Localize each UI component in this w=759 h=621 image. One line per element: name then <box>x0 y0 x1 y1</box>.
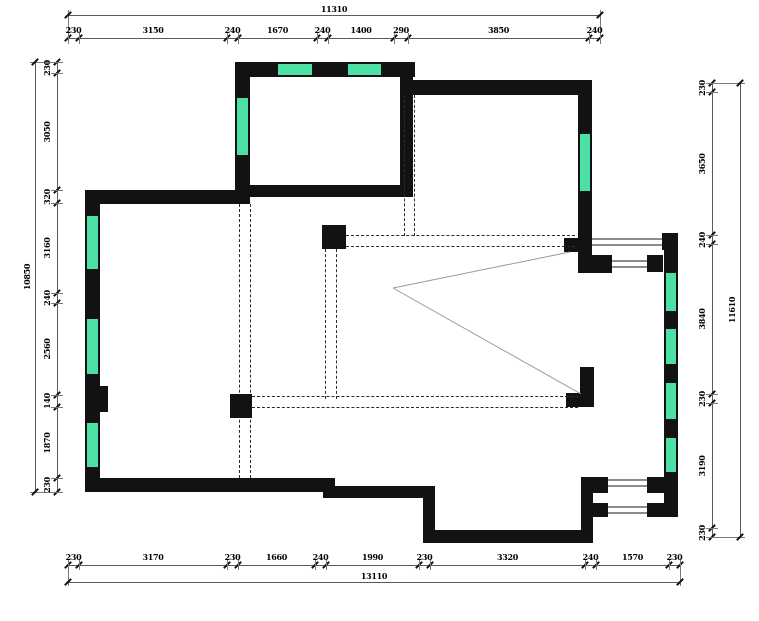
dim-bottom-segment-line <box>68 565 680 566</box>
dim-bottom-segment-7: 3320 <box>497 553 518 561</box>
dim-bottom-segment-3: 1660 <box>266 553 287 561</box>
dim-top-overall-line <box>68 15 600 16</box>
dim-ext-right <box>706 244 718 245</box>
dim-ext-left <box>51 395 63 396</box>
dim-top-segment-1: 3150 <box>142 26 163 34</box>
dim-top-overall-label: 11310 <box>321 5 347 13</box>
dim-left-segment-3: 3160 <box>43 237 51 258</box>
dim-left-segment-7: 1870 <box>43 432 51 453</box>
opening-lines <box>0 0 759 621</box>
dim-top-segment-4: 240 <box>315 26 331 34</box>
dim-ext-left <box>51 407 63 408</box>
dim-right-overall-line <box>740 83 741 537</box>
dim-bottom-segment-2: 230 <box>225 553 241 561</box>
dim-right-segment-6: 230 <box>698 525 706 541</box>
dim-bottom-segment-6: 230 <box>417 553 433 561</box>
dim-bottom-segment-0: 230 <box>66 553 82 561</box>
dim-left-overall-line <box>35 62 36 492</box>
dim-left-segment-6: 140 <box>43 393 51 409</box>
dim-top-segment-6: 290 <box>393 26 409 34</box>
dim-left-segment-8: 230 <box>43 477 51 493</box>
dim-right-segment-0: 230 <box>698 80 706 96</box>
dim-top-segment-7: 3850 <box>488 26 509 34</box>
dim-ext-left <box>51 73 63 74</box>
dim-left-segment-0: 230 <box>43 60 51 76</box>
dim-left-segment-1: 3050 <box>43 121 51 142</box>
dim-ext-left <box>51 478 63 479</box>
dim-ext-left <box>51 190 63 191</box>
dim-bottom-segment-1: 3170 <box>142 553 163 561</box>
dim-right-segment-5: 3190 <box>698 455 706 476</box>
dim-ext-left <box>51 293 63 294</box>
dim-left-segment-line <box>57 62 58 492</box>
dim-top-segment-0: 230 <box>66 26 82 34</box>
dim-ext-right <box>706 394 718 395</box>
dim-bottom-segment-9: 1570 <box>622 553 643 561</box>
dim-ext-left <box>51 62 63 63</box>
dim-top-segment-line <box>68 38 600 39</box>
dim-ext-right <box>706 528 718 529</box>
dim-ext-left <box>51 303 63 304</box>
dim-right-segment-3: 3840 <box>698 308 706 329</box>
dim-bottom-segment-4: 240 <box>313 553 329 561</box>
opening-line-lower <box>393 288 581 394</box>
dim-ext-left <box>51 492 63 493</box>
dim-bottom-segment-8: 240 <box>583 553 599 561</box>
dim-bottom-overall-line <box>68 582 680 583</box>
dim-right-segment-4: 230 <box>698 391 706 407</box>
dim-top-segment-2: 240 <box>225 26 241 34</box>
dim-right-segment-line <box>712 83 713 537</box>
dim-left-overall-label: 10850 <box>23 264 31 290</box>
dim-bottom-segment-5: 1990 <box>362 553 383 561</box>
dim-top-segment-3: 1670 <box>267 26 288 34</box>
dim-ext-right <box>706 403 718 404</box>
dim-ext-left <box>51 203 63 204</box>
dim-bottom-segment-10: 230 <box>667 553 683 561</box>
dim-left-segment-5: 2560 <box>43 338 51 359</box>
floor-plan-canvas: 11310 13110 10850 11610 2303150240167024… <box>0 0 759 621</box>
dim-ext-right <box>706 235 718 236</box>
dim-left-segment-2: 320 <box>43 189 51 205</box>
dim-ext-right <box>706 537 718 538</box>
opening-line-upper <box>393 252 570 288</box>
dim-top-segment-8: 240 <box>587 26 603 34</box>
dim-top-segment-5: 1400 <box>350 26 371 34</box>
dim-right-segment-1: 3650 <box>698 153 706 174</box>
dim-ext-right <box>706 92 718 93</box>
dim-left-segment-4: 240 <box>43 290 51 306</box>
dim-bottom-overall-label: 13110 <box>361 572 387 580</box>
dim-right-segment-2: 240 <box>698 232 706 248</box>
dim-ext-right <box>706 83 718 84</box>
dim-right-overall-label: 11610 <box>728 297 736 323</box>
